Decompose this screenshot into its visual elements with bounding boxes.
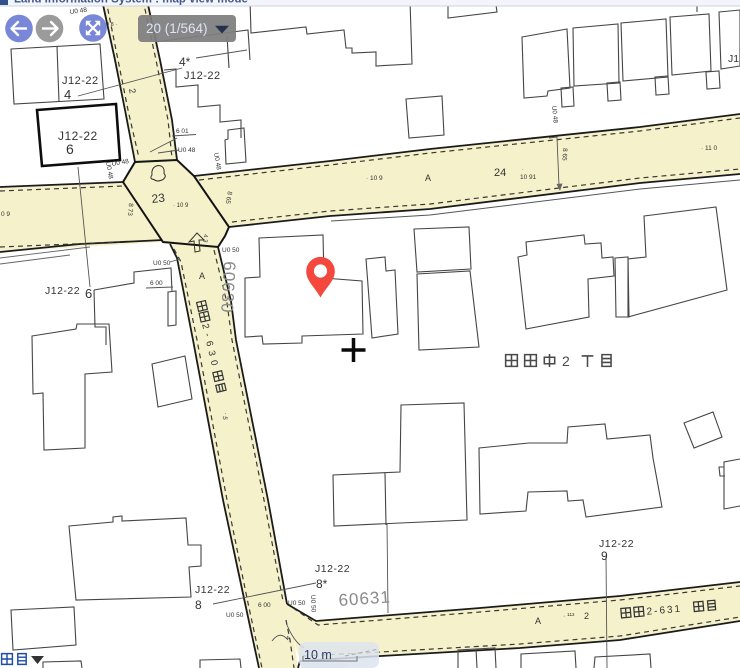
svg-text:6 01: 6 01 — [176, 128, 189, 135]
svg-text:23: 23 — [151, 191, 166, 206]
svg-text:4 3: 4 3 — [201, 234, 208, 243]
svg-text:· 10 9: · 10 9 — [173, 203, 189, 209]
svg-text:U0 50: U0 50 — [309, 595, 317, 613]
svg-text:6 00: 6 00 — [150, 280, 163, 287]
svg-text:U0 50: U0 50 — [288, 600, 306, 607]
svg-text:J12-22: J12-22 — [58, 129, 98, 143]
svg-text:6: 6 — [66, 141, 74, 157]
svg-text:A: A — [535, 616, 541, 626]
svg-text:10 m: 10 m — [304, 648, 332, 662]
svg-text:J12-22: J12-22 — [195, 584, 230, 596]
svg-text:· 11 0: · 11 0 — [701, 145, 718, 152]
svg-text:0 9: 0 9 — [1, 211, 10, 218]
svg-text:6: 6 — [85, 286, 92, 301]
svg-text:J12: J12 — [728, 53, 740, 65]
svg-text:U0 50: U0 50 — [226, 612, 244, 619]
svg-text:2: 2 — [584, 611, 589, 621]
svg-text:U0 48: U0 48 — [178, 147, 196, 154]
svg-text:24: 24 — [494, 167, 506, 179]
svg-text:U0 50: U0 50 — [153, 260, 171, 267]
svg-text:U0 50: U0 50 — [222, 247, 240, 254]
svg-text:J12-22: J12-22 — [62, 75, 99, 87]
svg-text:· 10 9: · 10 9 — [366, 175, 383, 182]
svg-text:8 73: 8 73 — [126, 203, 134, 217]
svg-text:9: 9 — [601, 549, 608, 563]
svg-text:8 65: 8 65 — [561, 148, 568, 161]
svg-text:2: 2 — [562, 353, 570, 369]
svg-text:4: 4 — [64, 87, 71, 102]
svg-text:10 91: 10 91 — [520, 174, 537, 181]
svg-text:20 (1/564): 20 (1/564) — [146, 21, 208, 36]
svg-text:8: 8 — [195, 598, 202, 612]
svg-text:J12-22: J12-22 — [184, 70, 221, 82]
svg-text:A: A — [199, 271, 205, 281]
svg-text:6 00: 6 00 — [258, 602, 271, 609]
svg-text:60630: 60630 — [217, 261, 239, 314]
svg-text:· ¹¹³: · ¹¹³ — [563, 613, 575, 620]
svg-text:J12-22: J12-22 — [45, 285, 80, 297]
svg-text:60631: 60631 — [338, 587, 391, 610]
svg-text:A: A — [425, 173, 431, 183]
svg-text:4*: 4* — [179, 55, 191, 69]
svg-text:J12-22: J12-22 — [315, 563, 350, 575]
svg-text:8*: 8* — [316, 577, 328, 591]
svg-text:Land Information System : map: Land Information System : map view mode — [14, 0, 248, 6]
